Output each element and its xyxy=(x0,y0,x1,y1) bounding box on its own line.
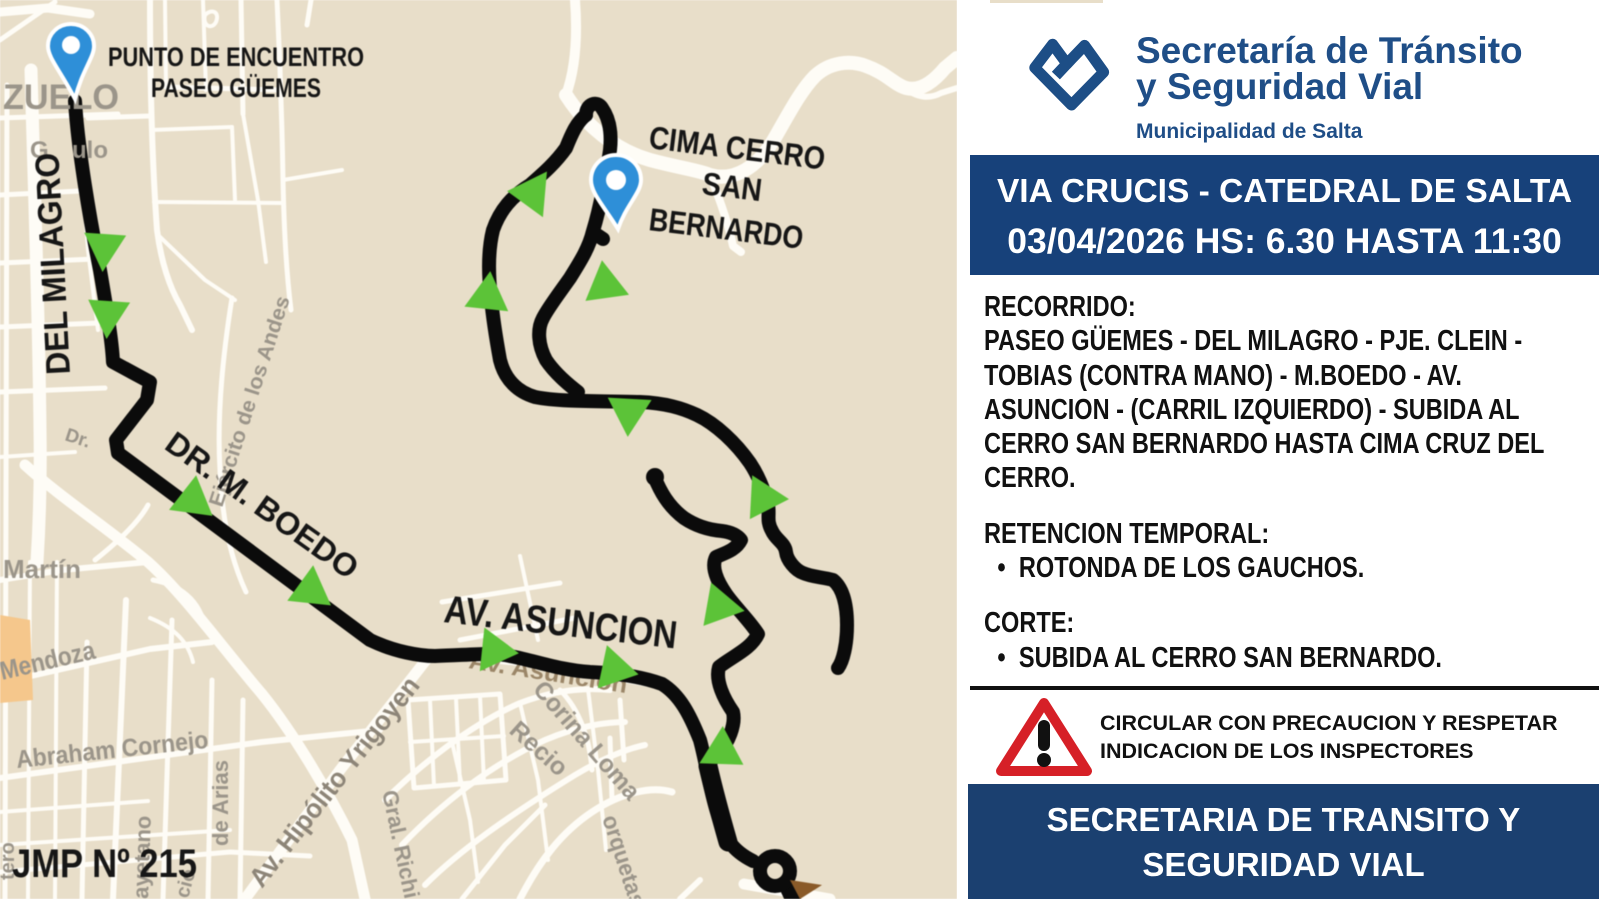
svg-text:JMP Nº 215: JMP Nº 215 xyxy=(12,842,197,886)
svg-text:Martín: Martín xyxy=(3,554,81,584)
svg-text:PASEO GÜEMES: PASEO GÜEMES xyxy=(151,73,321,103)
svg-text:de Arias: de Arias xyxy=(208,760,233,846)
svg-text:ulo: ulo xyxy=(72,137,108,164)
svg-text:ZUELO: ZUELO xyxy=(3,78,119,117)
svg-text:SAN: SAN xyxy=(700,165,764,208)
svg-text:PUNTO DE ENCUENTRO: PUNTO DE ENCUENTRO xyxy=(108,42,364,72)
